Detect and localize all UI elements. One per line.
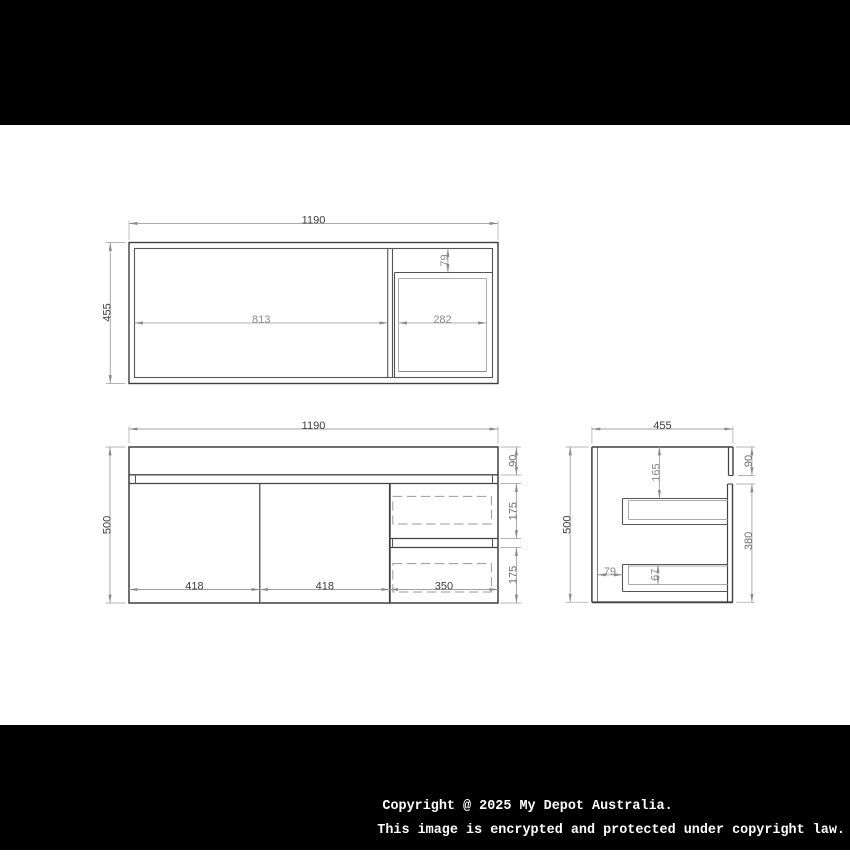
svg-text:813: 813 — [252, 314, 270, 326]
svg-text:90: 90 — [508, 455, 520, 467]
svg-text:455: 455 — [653, 420, 671, 432]
svg-text:67: 67 — [649, 569, 661, 581]
svg-text:79: 79 — [439, 254, 451, 266]
svg-text:500: 500 — [102, 516, 114, 534]
svg-text:Copyright @ 2025 My Depot Aust: Copyright @ 2025 My Depot Australia. — [382, 799, 672, 814]
svg-text:380: 380 — [743, 532, 755, 550]
svg-text:175: 175 — [508, 502, 520, 520]
svg-text:1190: 1190 — [302, 215, 326, 227]
svg-text:282: 282 — [433, 314, 451, 326]
svg-text:418: 418 — [316, 581, 334, 593]
svg-text:This image is encrypted and pr: This image is encrypted and protected un… — [377, 823, 845, 838]
svg-text:500: 500 — [562, 516, 574, 534]
svg-text:175: 175 — [508, 566, 520, 584]
svg-text:350: 350 — [435, 581, 453, 593]
svg-text:79: 79 — [604, 566, 616, 578]
svg-text:455: 455 — [101, 303, 113, 321]
svg-text:1190: 1190 — [302, 420, 326, 432]
svg-text:418: 418 — [185, 581, 203, 593]
svg-text:165: 165 — [650, 463, 662, 481]
svg-text:90: 90 — [743, 455, 755, 467]
